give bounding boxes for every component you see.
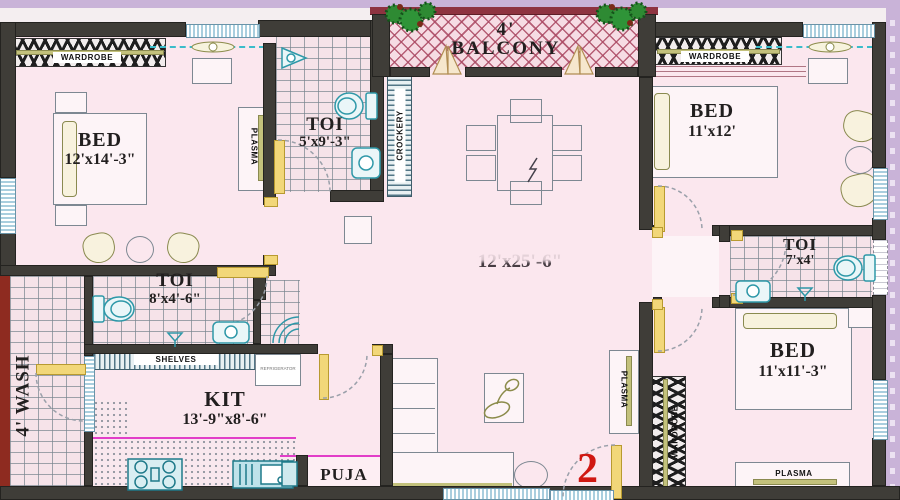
- door-arc: [658, 307, 702, 351]
- bed2-dims: 11'x12': [664, 124, 760, 140]
- fan-symbol-bed1: [192, 42, 234, 52]
- bed3-dims: 11'x11'-3": [740, 364, 846, 380]
- shower-corner: [273, 317, 299, 343]
- toilet2-label: TOI: [130, 271, 220, 290]
- wardrobe-label-bed3: WARDROBE: [670, 385, 681, 479]
- plasma-label-bed1: PLASMA: [249, 110, 260, 184]
- kitchen-label: KIT: [190, 389, 260, 410]
- living-dims: 12'x25'-6": [458, 252, 582, 271]
- bed3-label: BED: [748, 340, 838, 361]
- puja-basin: [282, 462, 297, 486]
- toilet1-dims: 5'x9'-3": [285, 135, 365, 150]
- electrical-symbol: [528, 158, 537, 182]
- toilet3-label: TOI: [768, 236, 832, 253]
- door-arc: [323, 354, 367, 398]
- wardrobe-label-bed2: WARDROBE: [681, 51, 749, 62]
- toilet3-dims: 7'x4': [772, 254, 828, 268]
- floor-drain: [168, 333, 182, 347]
- wc-tank: [93, 296, 104, 322]
- puja-label: PUJA: [308, 466, 380, 483]
- fan-symbol-bed2: [809, 42, 851, 52]
- wc-tank: [366, 93, 377, 119]
- floor-plan: REFRIGERATOR: [0, 0, 900, 500]
- toilet1-label: TOI: [295, 115, 355, 134]
- bed1-label: BED: [53, 130, 147, 150]
- plasma-label-living: PLASMA: [619, 353, 630, 427]
- wc-tank: [864, 255, 875, 281]
- unit-number: 2: [577, 448, 598, 490]
- plasma-label-bed3: PLASMA: [760, 468, 828, 479]
- floor-drain: [798, 288, 812, 301]
- wash-label: 4' WASH: [14, 336, 33, 456]
- center-table-motif: [482, 377, 520, 421]
- planter-right: [597, 3, 646, 30]
- door-arc: [658, 186, 702, 230]
- planter-left: [386, 3, 435, 31]
- balcony-label: 4' BALCONY: [440, 20, 572, 58]
- bed2-label: BED: [664, 101, 760, 121]
- wardrobe-label-bed1: WARDROBE: [53, 52, 121, 63]
- kitchen-dims: 13'-9"x8'-6": [160, 412, 290, 428]
- shelves-label: SHELVES: [134, 354, 218, 365]
- bed1-dims: 12'x14'-3": [48, 152, 152, 168]
- crockery-label: CROCKERY: [395, 89, 406, 183]
- door-arc: [217, 276, 267, 326]
- toilet2-dims: 8'x4'-6": [130, 292, 220, 307]
- door-arc: [36, 373, 84, 421]
- plan-symbols: [0, 0, 900, 500]
